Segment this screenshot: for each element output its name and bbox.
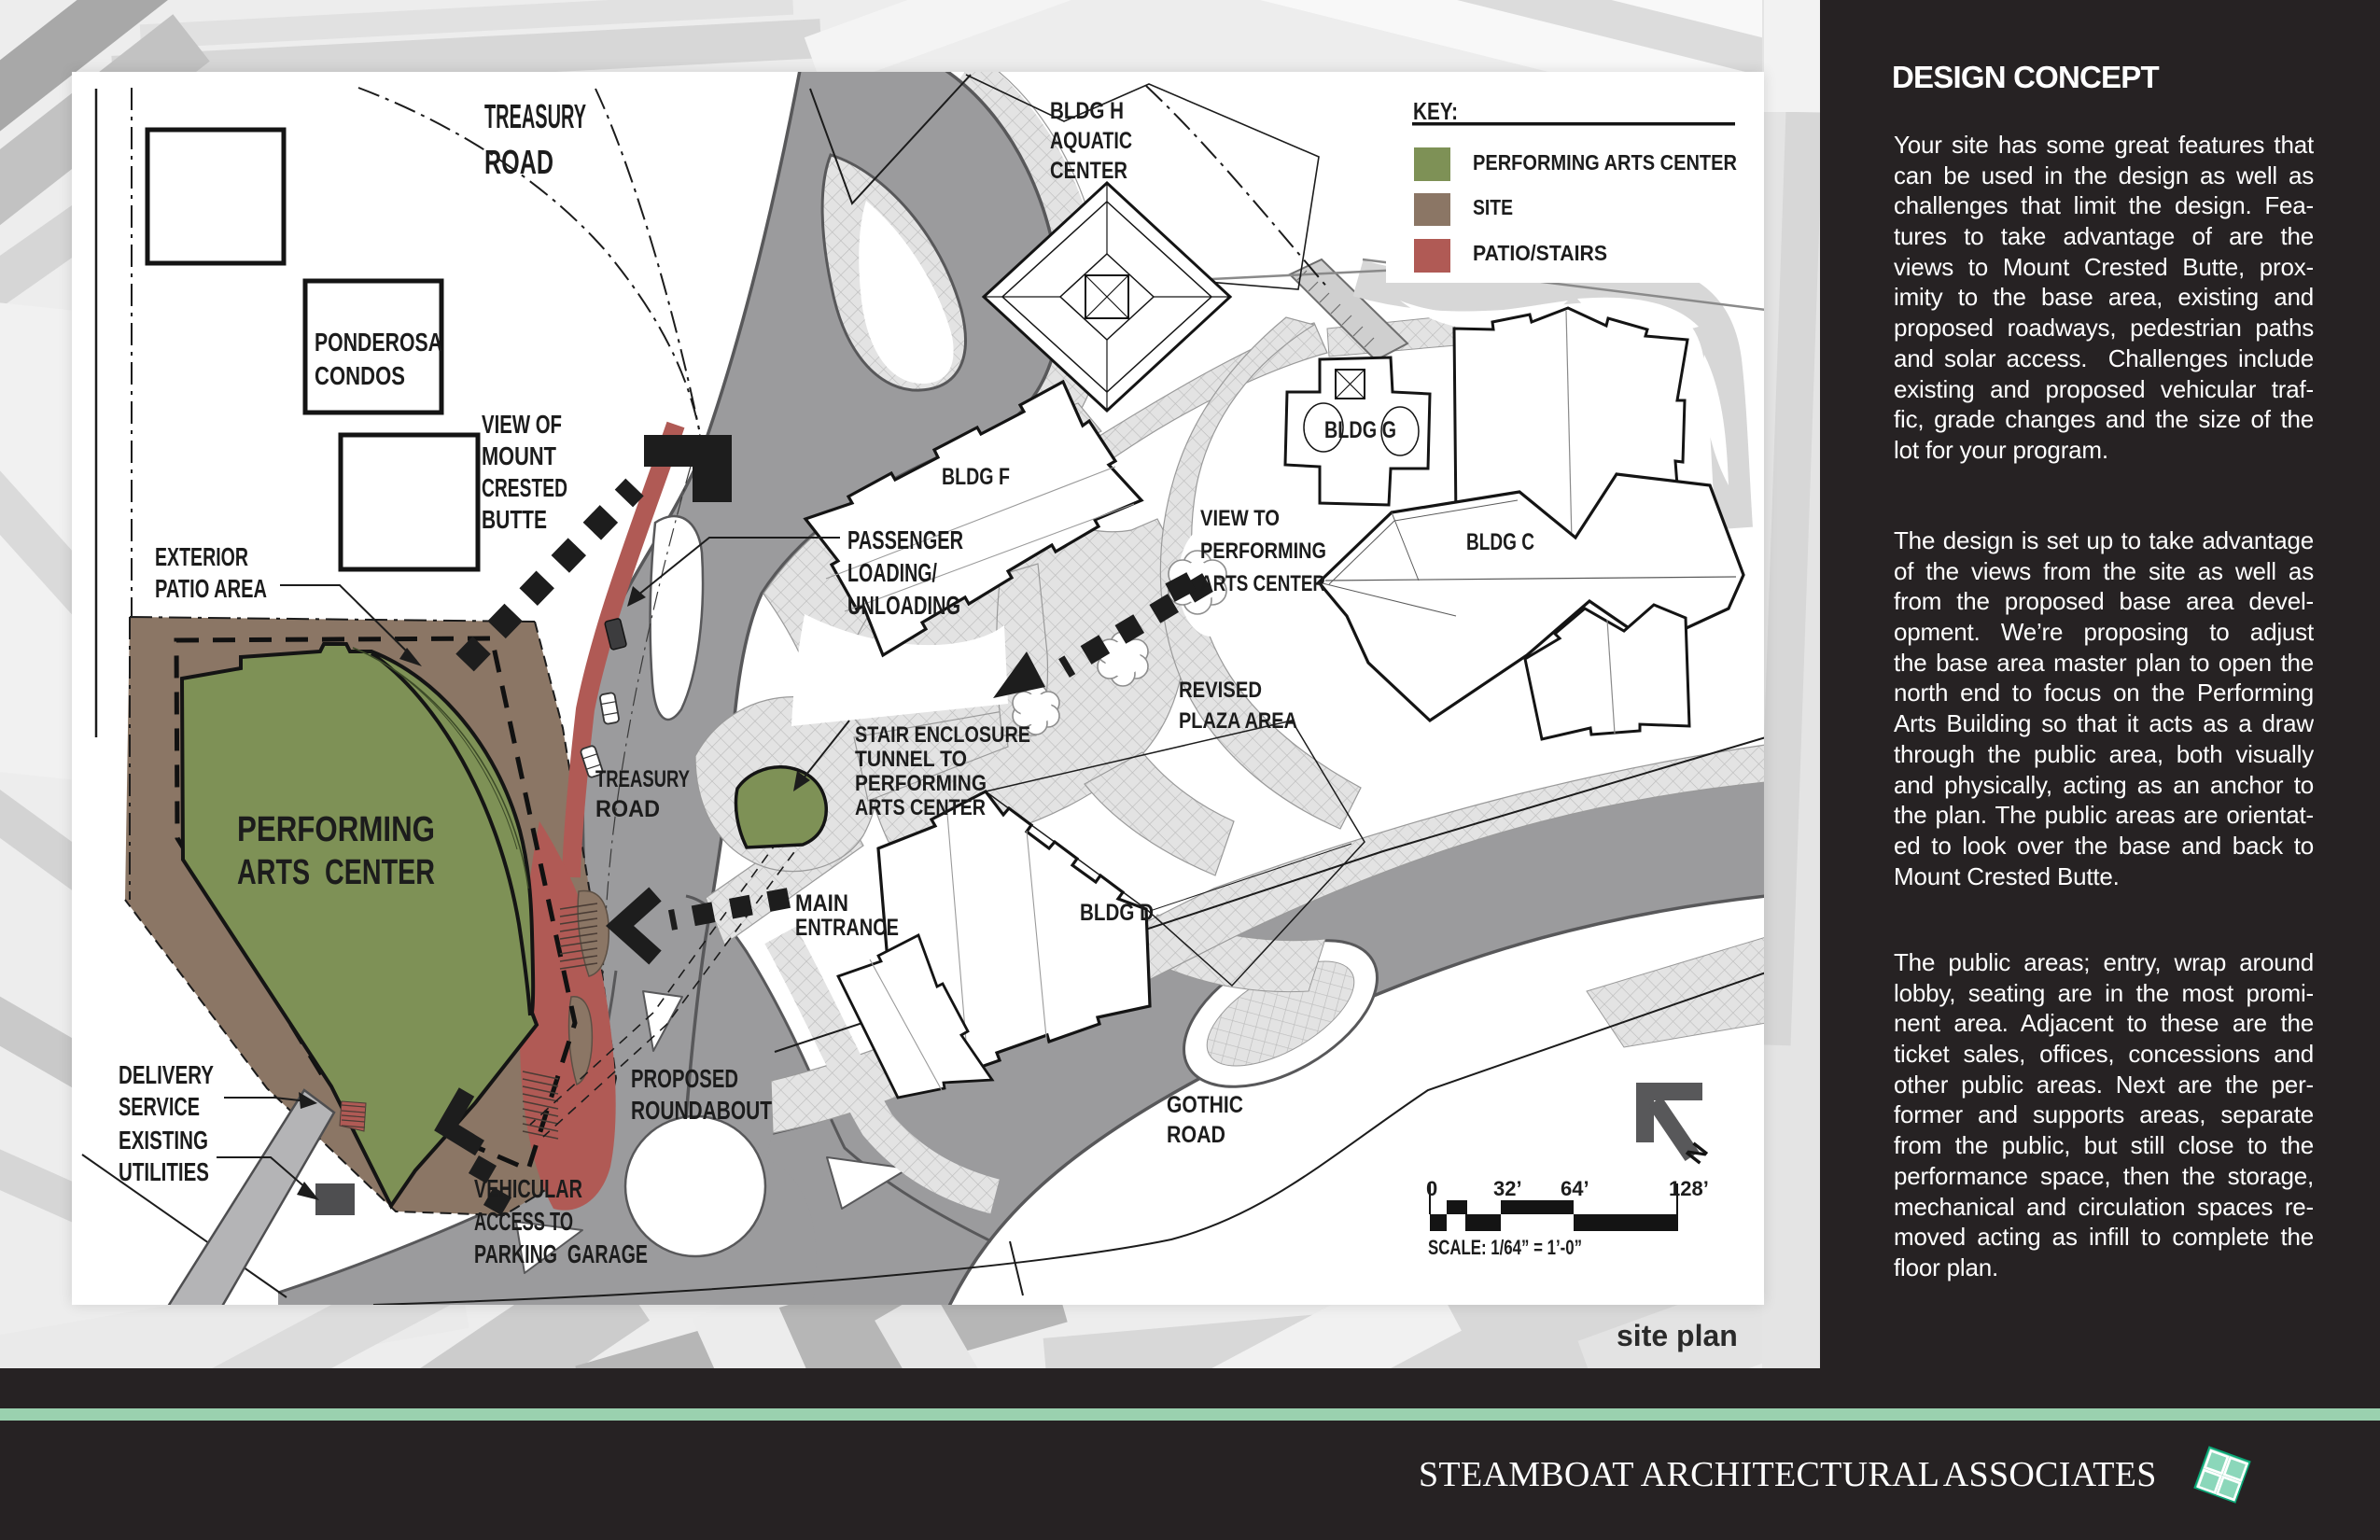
svg-text:SITE: SITE bbox=[1473, 195, 1513, 219]
svg-text:BLDG F: BLDG F bbox=[942, 464, 1010, 490]
svg-text:DELIVERYSERVICE: DELIVERYSERVICE bbox=[119, 1060, 214, 1121]
svg-text:BLDG HAQUATICCENTER: BLDG HAQUATICCENTER bbox=[1050, 98, 1132, 184]
svg-text:EXTERIORPATIO AREA: EXTERIORPATIO AREA bbox=[155, 542, 267, 603]
svg-text:0: 0 bbox=[1426, 1177, 1437, 1200]
svg-text:SCALE: 1/64” = 1’-0”: SCALE: 1/64” = 1’-0” bbox=[1428, 1236, 1582, 1259]
svg-text:PATIO/STAIRS: PATIO/STAIRS bbox=[1473, 241, 1607, 265]
svg-text:128’: 128’ bbox=[1669, 1177, 1709, 1200]
svg-text:BLDG C: BLDG C bbox=[1466, 529, 1534, 555]
svg-text:PERFORMING ARTS CENTER: PERFORMING ARTS CENTER bbox=[1473, 150, 1737, 175]
svg-text:VIEW OFMOUNTCRESTEDBUTTE: VIEW OFMOUNTCRESTEDBUTTE bbox=[482, 410, 567, 534]
svg-text:BLDG D: BLDG D bbox=[1080, 900, 1154, 926]
svg-text:GOTHICROAD: GOTHICROAD bbox=[1167, 1092, 1243, 1148]
svg-text:VIEW TOPERFORMINGARTS CENTER: VIEW TOPERFORMINGARTS CENTER bbox=[1200, 506, 1326, 596]
svg-text:64’: 64’ bbox=[1561, 1177, 1589, 1200]
svg-text:32’: 32’ bbox=[1493, 1177, 1522, 1200]
svg-text:BLDG G: BLDG G bbox=[1324, 417, 1396, 443]
svg-text:EXISTINGUTILITIES: EXISTINGUTILITIES bbox=[119, 1126, 209, 1186]
svg-text:KEY:: KEY: bbox=[1413, 97, 1458, 125]
svg-text:TREASURYROAD: TREASURYROAD bbox=[484, 97, 586, 181]
